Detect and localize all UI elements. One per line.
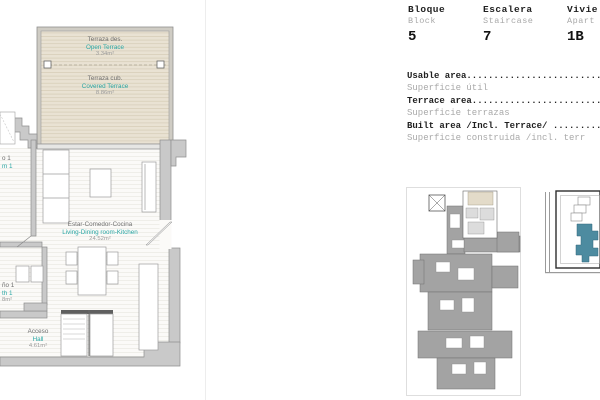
staircase-sublabel: Staircase	[483, 16, 533, 26]
open-terrace-label-en: Open Terrace	[86, 44, 124, 52]
block-label: Bloque	[408, 4, 445, 15]
block-sublabel: Block	[408, 16, 445, 26]
dining-table	[78, 247, 106, 295]
open-terrace-area: 3.34m²	[86, 51, 124, 59]
living-room-area: 24.52m²	[62, 236, 138, 244]
sofa	[142, 162, 156, 212]
hall-label-en: Hall	[28, 336, 49, 344]
covered-terrace-label: Terraza cub. Covered Terrace 8.86m²	[82, 75, 128, 98]
kitchen-cabinets	[61, 310, 113, 356]
apartment-sublabel: Apart	[567, 16, 598, 26]
chair	[107, 252, 118, 265]
usable-area-es: Superficie útil	[407, 82, 600, 94]
built-area-label: Built area /Incl. Terrace/ .............…	[407, 120, 600, 132]
apartment-label: Vivie	[567, 4, 598, 15]
bath-wall-bottom	[0, 311, 47, 318]
bedroom-label-en-fragment: m 1	[2, 163, 13, 171]
terrace-area-label: Terrace area............................…	[407, 95, 600, 107]
open-terrace-label-es: Terraza des.	[86, 36, 124, 44]
apartment-value: 1B	[567, 29, 598, 45]
bedroom-window	[0, 112, 15, 144]
terrace-window-band	[37, 144, 173, 149]
covered-terrace-label-es: Terraza cub.	[82, 75, 128, 83]
living-room-label-en: Living-Dining room-Kitchen	[62, 229, 138, 237]
floorplan-sheet: Terraza des. Open Terrace 3.34m² Terraza…	[0, 0, 600, 400]
header-apartment: Vivie Apart 1B	[567, 4, 598, 45]
covered-terrace-label-en: Covered Terrace	[82, 83, 128, 91]
chair	[66, 252, 77, 265]
living-room-label: Estar-Comedor-Cocina Living-Dining room-…	[62, 221, 138, 244]
bath-fixture	[31, 266, 43, 282]
staircase-value: 7	[483, 29, 533, 45]
partition-wall	[31, 140, 36, 236]
terrace-area-es: Superficie terrazas	[407, 107, 600, 119]
living-room-label-es: Estar-Comedor-Cocina	[62, 221, 138, 229]
right-wall-lower	[169, 248, 180, 343]
header-staircase: Escalera Staircase 7	[483, 4, 533, 45]
built-area-es: Superficie construida /incl. terr	[407, 132, 600, 144]
drawing-layer	[0, 0, 600, 400]
usable-area-label: Usable area.............................…	[407, 70, 600, 82]
bath-fixture	[16, 266, 29, 282]
bath-area-fragment: 8m²	[2, 297, 14, 305]
chair	[107, 271, 118, 284]
bath-wall-top	[0, 242, 42, 247]
kitchen-counter	[139, 264, 158, 350]
right-wall-bay	[171, 140, 186, 166]
bedroom-label-es-fragment: o 1	[2, 155, 13, 163]
bedroom-label-fragment: o 1 m 1	[2, 155, 13, 170]
terrace-marker-left	[44, 61, 51, 68]
coffee-table	[90, 169, 111, 197]
staircase-label: Escalera	[483, 4, 533, 15]
hall-label: Acceso Hall 4.61m²	[28, 328, 49, 351]
chair	[66, 271, 77, 284]
key-plan	[407, 188, 521, 396]
sheet-divider	[205, 0, 206, 400]
bath-label-en-fragment: th 1	[2, 290, 14, 298]
bath-label-fragment: ño 1 th 1 8m²	[2, 282, 14, 305]
elevator-core	[429, 195, 445, 211]
terrace-marker-right	[157, 61, 164, 68]
location-map	[545, 191, 600, 273]
wardrobe	[43, 150, 69, 223]
area-summary: Usable area.............................…	[407, 70, 600, 144]
highlighted-unit	[463, 191, 497, 238]
block-value: 5	[408, 29, 445, 45]
header-block: Bloque Block 5	[408, 4, 445, 45]
hall-area: 4.61m²	[28, 343, 49, 351]
bath-label-es-fragment: ño 1	[2, 282, 14, 290]
covered-terrace-area: 8.86m²	[82, 90, 128, 98]
open-terrace-label: Terraza des. Open Terrace 3.34m²	[86, 36, 124, 59]
bath-wall-step	[24, 303, 47, 311]
hall-label-es: Acceso	[28, 328, 49, 336]
